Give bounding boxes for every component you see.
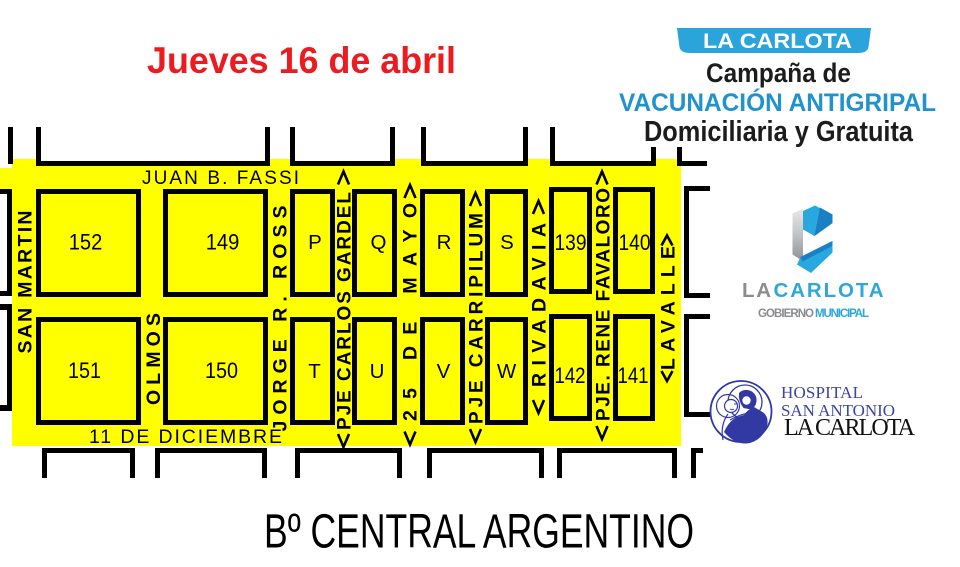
svg-text:Campaña de: Campaña de [706, 58, 851, 88]
svg-text:U: U [370, 360, 385, 383]
svg-text:HOSPITAL: HOSPITAL [781, 383, 863, 402]
svg-text:PJE. RENE FAVALORO: PJE. RENE FAVALORO [594, 188, 615, 421]
svg-text:RIVADAVIA: RIVADAVIA [529, 223, 551, 387]
svg-text:151: 151 [68, 358, 101, 383]
svg-text:LA CARLOTA: LA CARLOTA [703, 30, 852, 53]
svg-text:P: P [308, 231, 322, 254]
svg-text:PJE CARLOS GARDEL: PJE CARLOS GARDEL [335, 192, 356, 430]
svg-text:Jueves 16 de abril: Jueves 16 de abril [147, 40, 456, 81]
svg-text:Q: Q [371, 231, 387, 254]
svg-text:SAN MARTIN: SAN MARTIN [15, 211, 37, 354]
svg-text:11 DE DICIEMBRE: 11 DE DICIEMBRE [89, 426, 282, 448]
svg-text:W: W [497, 360, 517, 383]
svg-text:R: R [437, 231, 452, 254]
svg-text:S: S [500, 231, 514, 254]
svg-text:OLMOS: OLMOS [143, 313, 165, 405]
svg-text:152: 152 [69, 230, 103, 255]
svg-text:V: V [437, 360, 451, 383]
svg-text:142: 142 [555, 363, 586, 388]
svg-text:T: T [308, 360, 321, 383]
svg-text:150: 150 [205, 358, 238, 383]
svg-text:140: 140 [619, 230, 651, 255]
svg-text:LA: LA [742, 279, 771, 302]
svg-text:139: 139 [555, 230, 587, 255]
svg-text:GOBIERNO: GOBIERNO [758, 308, 814, 320]
svg-text:Domiciliaria y Gratuita: Domiciliaria y Gratuita [644, 116, 914, 148]
svg-text:Bº CENTRAL ARGENTINO: Bº CENTRAL ARGENTINO [264, 505, 694, 559]
svg-text:149: 149 [206, 230, 240, 255]
svg-text:LA CARLOTA: LA CARLOTA [784, 415, 916, 441]
svg-text:PJE CARRIPILUM: PJE CARRIPILUM [467, 213, 488, 424]
svg-text:VACUNACIÓN ANTIGRIPAL: VACUNACIÓN ANTIGRIPAL [619, 87, 936, 117]
svg-text:MUNICIPAL: MUNICIPAL [815, 308, 869, 320]
svg-text:141: 141 [618, 363, 649, 388]
